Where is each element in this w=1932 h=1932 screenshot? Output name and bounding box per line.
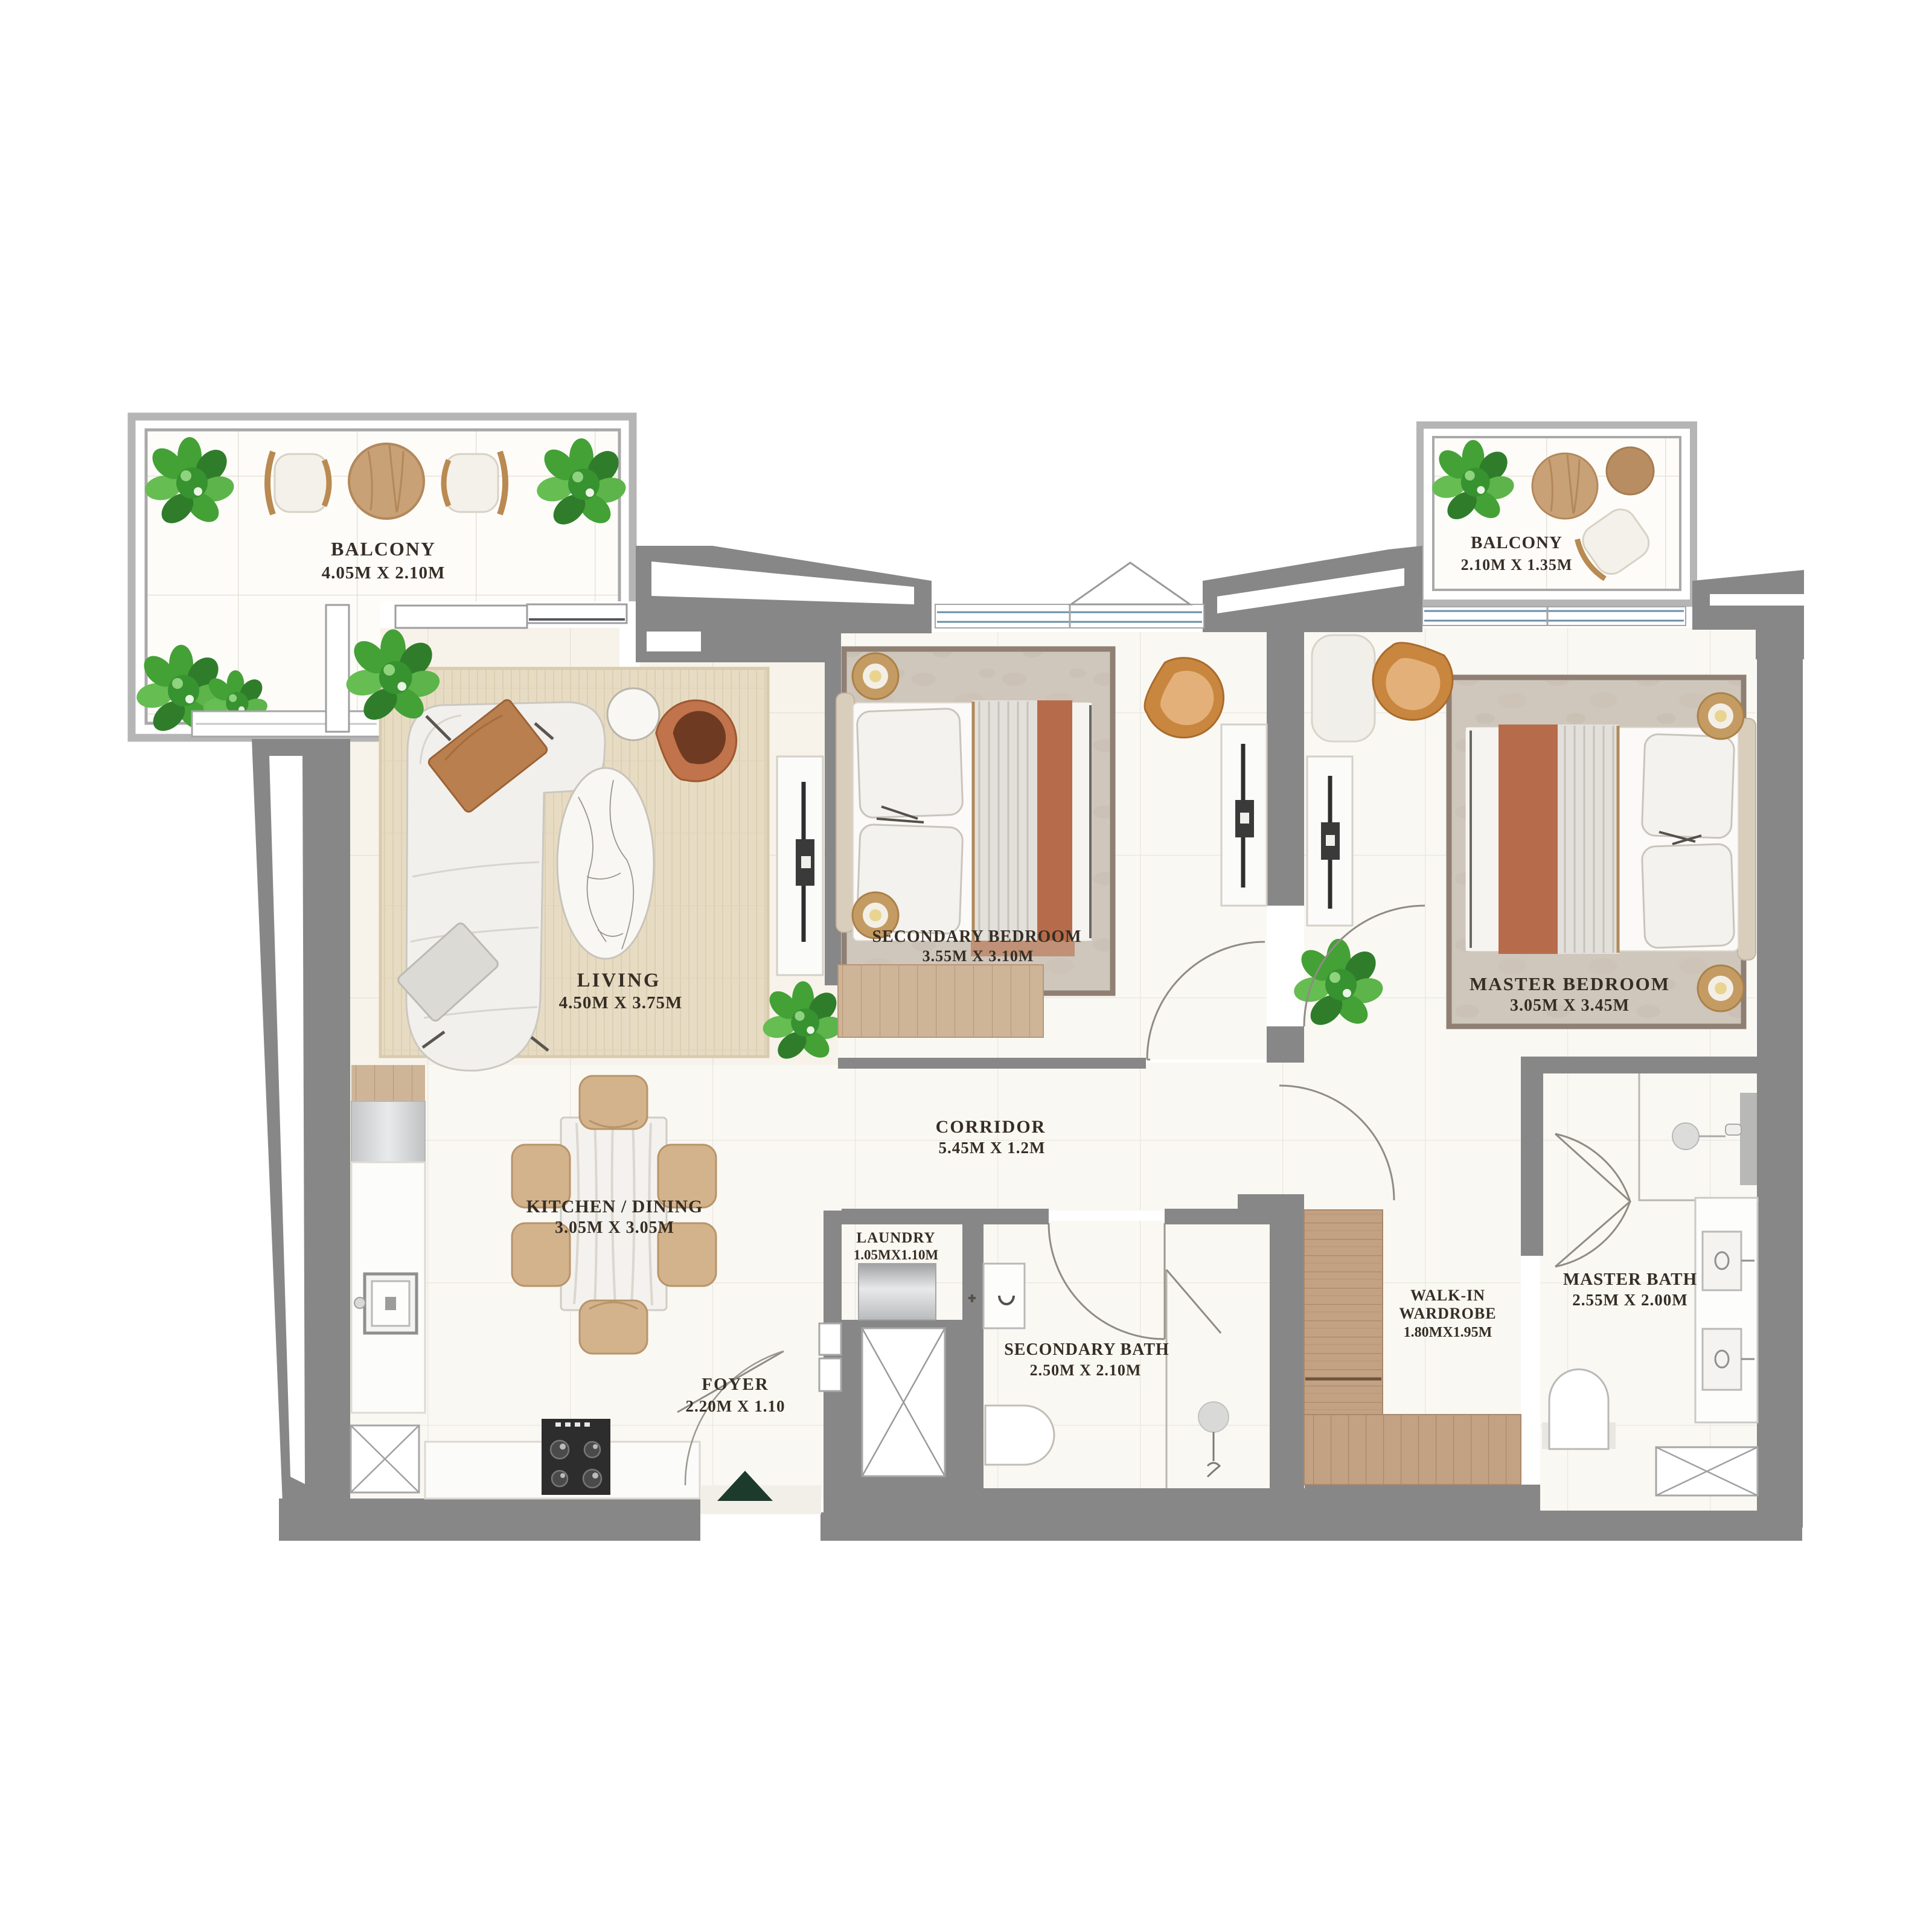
svg-text:SECONDARY BEDROOM: SECONDARY BEDROOM	[872, 927, 1081, 946]
svg-text:4.05M X 2.10M: 4.05M X 2.10M	[322, 563, 446, 583]
svg-text:WARDROBE: WARDROBE	[1399, 1305, 1496, 1322]
svg-text:SECONDARY BATH: SECONDARY BATH	[1004, 1340, 1169, 1359]
svg-text:5.45M X 1.2M: 5.45M X 1.2M	[939, 1139, 1046, 1157]
svg-text:1.80MX1.95M: 1.80MX1.95M	[1404, 1325, 1492, 1340]
svg-text:CORRIDOR: CORRIDOR	[936, 1117, 1046, 1137]
svg-text:FOYER: FOYER	[702, 1375, 769, 1394]
svg-text:3.55M X 3.10M: 3.55M X 3.10M	[923, 947, 1034, 965]
svg-text:2.10M X 1.35M: 2.10M X 1.35M	[1461, 556, 1573, 574]
svg-text:BALCONY: BALCONY	[1471, 533, 1563, 552]
svg-text:LIVING: LIVING	[577, 970, 661, 991]
svg-text:WALK-IN: WALK-IN	[1410, 1287, 1485, 1304]
svg-text:2.50M X 2.10M: 2.50M X 2.10M	[1030, 1361, 1142, 1379]
svg-text:2.55M X 2.00M: 2.55M X 2.00M	[1572, 1291, 1687, 1309]
svg-text:MASTER BEDROOM: MASTER BEDROOM	[1470, 973, 1670, 994]
svg-text:MASTER BATH: MASTER BATH	[1563, 1270, 1697, 1289]
svg-text:BALCONY: BALCONY	[331, 538, 436, 560]
svg-text:4.50M X 3.75M: 4.50M X 3.75M	[559, 993, 683, 1012]
svg-text:3.05M X 3.05M: 3.05M X 3.05M	[555, 1218, 674, 1237]
svg-text:3.05M X 3.45M: 3.05M X 3.45M	[1510, 996, 1630, 1015]
svg-text:1.05MX1.10M: 1.05MX1.10M	[854, 1247, 939, 1262]
svg-text:KITCHEN / DINING: KITCHEN / DINING	[526, 1197, 703, 1217]
svg-text:LAUNDRY: LAUNDRY	[856, 1230, 935, 1246]
svg-text:2.20M X 1.10: 2.20M X 1.10	[686, 1397, 785, 1415]
